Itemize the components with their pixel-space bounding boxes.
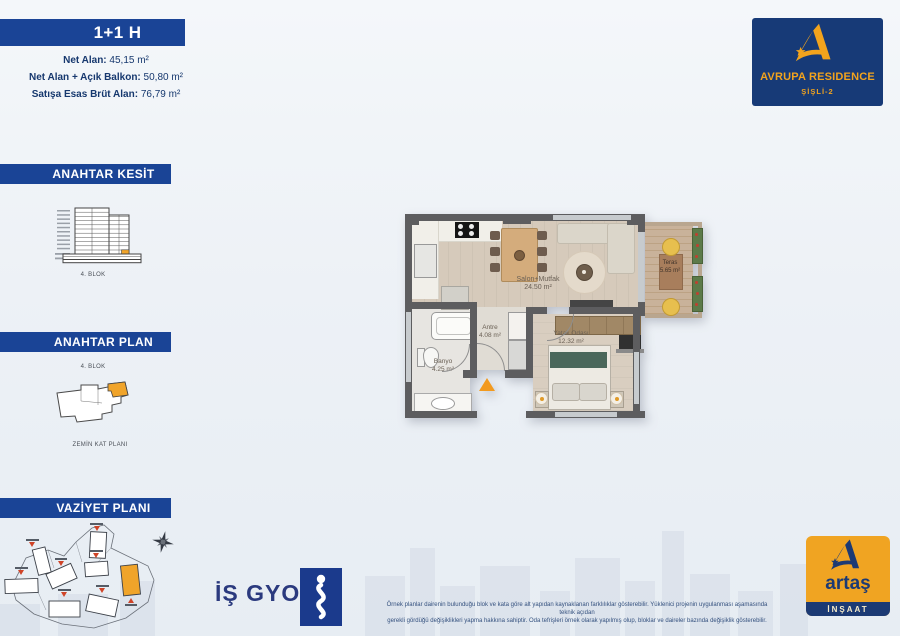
avrupa-residence-logo: AVRUPA RESIDENCE ŞİŞLİ-2 xyxy=(752,18,883,106)
window xyxy=(553,215,631,220)
artas-name: artaş xyxy=(806,573,890,595)
artas-a-mark-icon xyxy=(828,538,870,572)
balcony-area-line: Net Alan + Açık Balkon: 50,80 m² xyxy=(0,69,212,86)
room-name: Antre xyxy=(467,324,513,332)
key-plan-diagram xyxy=(55,381,147,433)
isbank-emblem-icon xyxy=(300,568,342,626)
disclaimer: Örnek planlar dairenin bulunduğu blok ve… xyxy=(383,601,771,625)
artas-logo: artaş İNŞAAT xyxy=(806,536,890,616)
area-summary: Net Alan: 45,15 m² Net Alan + Açık Balko… xyxy=(0,52,212,103)
chair-icon xyxy=(490,263,500,272)
gross-area-label: Satışa Esas Brüt Alan: xyxy=(32,89,138,100)
sofa xyxy=(557,223,611,244)
wall-segment xyxy=(526,307,533,377)
stove-icon xyxy=(455,222,479,238)
avrupa-residence-sub: ŞİŞLİ-2 xyxy=(752,87,883,96)
room-name: Salon+Mutfak xyxy=(491,276,585,284)
chair-icon xyxy=(537,263,547,272)
table-centerpiece xyxy=(514,250,525,261)
gross-area-value: 76,79 m² xyxy=(138,89,180,100)
laundry-unit xyxy=(508,340,528,370)
compass-icon xyxy=(150,529,176,555)
wall-segment xyxy=(405,411,477,418)
highlighted-floor-unit xyxy=(122,250,130,254)
disclaimer-line: gerekli gördüğü değişiklikleri yapma hak… xyxy=(383,617,771,625)
chair-icon xyxy=(537,247,547,256)
gross-area-line: Satışa Esas Brüt Alan: 76,79 m² xyxy=(0,86,212,103)
window xyxy=(555,412,617,417)
terrace-chair xyxy=(662,238,680,256)
building-section-diagram xyxy=(55,206,150,270)
room-area: 4.08 m² xyxy=(467,332,513,340)
highlighted-site-block xyxy=(120,564,140,596)
pillow xyxy=(552,383,580,401)
terrace-chair xyxy=(662,298,680,316)
balcony-area-value: 50,80 m² xyxy=(141,72,183,83)
lamp-icon xyxy=(610,392,623,405)
artas-insaat-bar: İNŞAAT xyxy=(806,602,890,616)
lamp-icon xyxy=(535,392,548,405)
chair-icon xyxy=(537,231,547,240)
sink-icon xyxy=(431,397,455,410)
unit-type-header: 1+1 H xyxy=(0,19,185,46)
wall-segment xyxy=(633,307,645,316)
net-area-value: 45,15 m² xyxy=(107,55,149,66)
salon-label: Salon+Mutfak 24.50 m² xyxy=(491,276,585,292)
net-area-label: Net Alan: xyxy=(63,55,107,66)
avrupa-residence-name: AVRUPA RESIDENCE xyxy=(752,71,883,83)
avrupa-a-mark-icon xyxy=(792,22,844,64)
disclaimer-line: Örnek planlar dairenin bulunduğu blok ve… xyxy=(383,601,771,617)
tv-console xyxy=(570,300,613,307)
room-area: 24.50 m² xyxy=(491,284,585,292)
kesit-caption: 4. BLOK xyxy=(43,272,143,278)
window xyxy=(634,352,639,404)
balcony-area-label: Net Alan + Açık Balkon: xyxy=(29,72,141,83)
terrace-label: Teras 5.65 m² xyxy=(645,260,695,275)
wall-segment xyxy=(470,302,477,378)
room-area: 5.65 m² xyxy=(645,268,695,276)
room-area: 12.32 m² xyxy=(533,338,609,346)
planter-icon xyxy=(692,276,703,312)
section-title-kesit: ANAHTAR KESİT xyxy=(0,164,171,184)
skyline-building xyxy=(780,564,808,636)
section-title-anahtar-plan: ANAHTAR PLAN xyxy=(0,332,171,352)
terrace-rail xyxy=(645,222,702,226)
zemin-kat-caption: ZEMİN KAT PLANI xyxy=(45,442,155,448)
net-area-line: Net Alan: 45,15 m² xyxy=(0,52,212,69)
section-title-vaziyet: VAZİYET PLANI xyxy=(0,498,171,518)
sofa-chaise xyxy=(607,223,635,274)
wall-segment xyxy=(533,307,547,314)
wall-segment xyxy=(638,214,645,232)
planter-icon xyxy=(692,228,703,264)
anahtar-plan-block-caption: 4. BLOK xyxy=(43,364,143,370)
room-name: Yatak Odası xyxy=(533,330,609,338)
chair-icon xyxy=(490,231,500,240)
wall-segment xyxy=(505,370,533,378)
terrace-door-window xyxy=(638,232,644,302)
window xyxy=(406,312,411,382)
brochure-page: 1+1 H Net Alan: 45,15 m² Net Alan + Açık… xyxy=(0,0,900,636)
chair-icon xyxy=(490,247,500,256)
isgyo-wordmark: İŞ GYO xyxy=(215,580,300,607)
fridge-icon xyxy=(414,244,437,278)
bed-blanket xyxy=(550,352,607,368)
antre-label: Antre 4.08 m² xyxy=(467,324,513,339)
site-plan-diagram xyxy=(2,522,184,634)
bedroom-label: Yatak Odası 12.32 m² xyxy=(533,330,609,345)
floor-plan: Teras 5.65 m² xyxy=(405,214,705,420)
pillow xyxy=(579,383,607,401)
wall-segment xyxy=(405,302,477,309)
wall-segment xyxy=(503,214,531,224)
entrance-marker xyxy=(479,378,495,391)
room-name: Teras xyxy=(645,260,695,268)
